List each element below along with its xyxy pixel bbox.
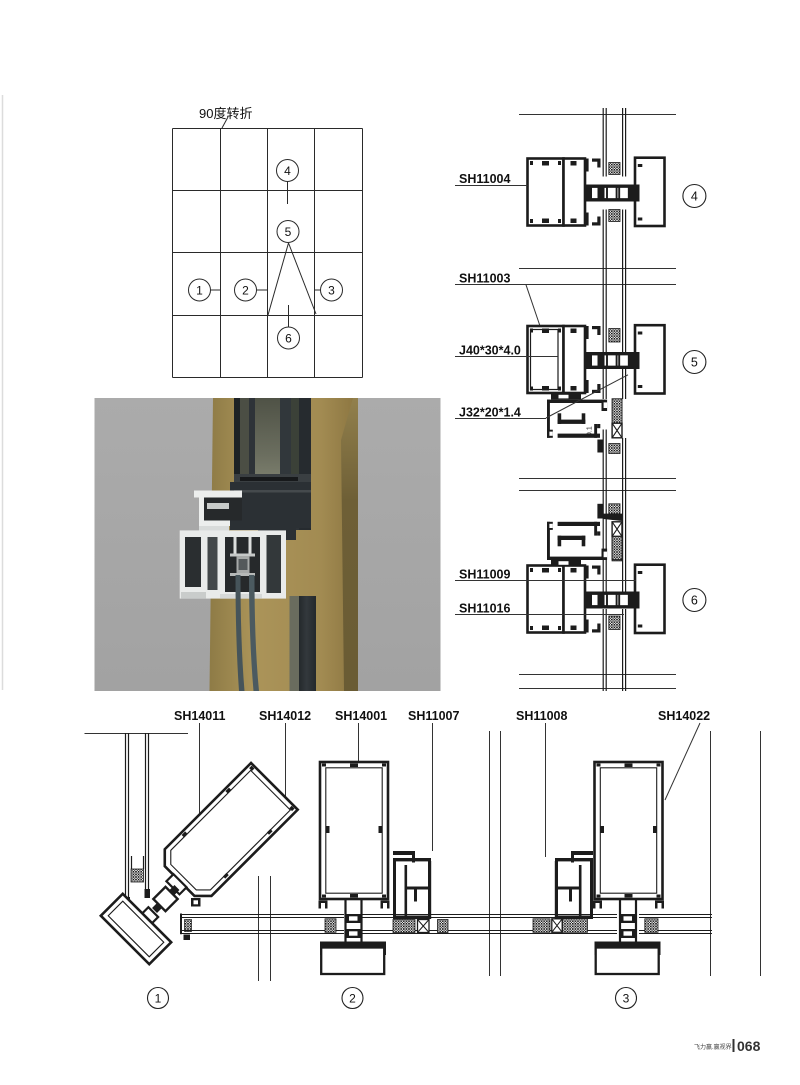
svg-text:J32*20*1.4: J32*20*1.4 xyxy=(459,406,521,420)
svg-text:SH11009: SH11009 xyxy=(459,568,510,582)
svg-text:SH11003: SH11003 xyxy=(459,272,510,286)
svg-text:5: 5 xyxy=(285,225,292,239)
svg-text:4: 4 xyxy=(284,164,291,178)
svg-text:SH11007: SH11007 xyxy=(408,709,459,723)
svg-text:6: 6 xyxy=(285,332,292,346)
svg-text:2: 2 xyxy=(349,991,356,1005)
svg-text:J40*30*4.0: J40*30*4.0 xyxy=(459,344,521,358)
svg-text:SH14012: SH14012 xyxy=(259,709,311,723)
svg-text:1: 1 xyxy=(155,991,162,1005)
svg-text:5: 5 xyxy=(691,356,698,370)
svg-text:飞力赢.赢视界: 飞力赢.赢视界 xyxy=(694,1043,732,1051)
svg-text:SH11008: SH11008 xyxy=(516,709,567,723)
svg-text:SH14022: SH14022 xyxy=(658,709,710,723)
svg-text:90度转折: 90度转折 xyxy=(199,106,252,121)
svg-text:068: 068 xyxy=(737,1038,761,1054)
svg-text:SH11016: SH11016 xyxy=(459,602,510,616)
svg-text:9.1: 9.1 xyxy=(587,426,594,436)
svg-text:1: 1 xyxy=(196,284,203,298)
svg-text:2: 2 xyxy=(242,284,249,298)
svg-text:6: 6 xyxy=(691,594,698,608)
svg-text:3: 3 xyxy=(623,991,630,1005)
svg-text:SH14001: SH14001 xyxy=(335,709,387,723)
svg-text:SH14011: SH14011 xyxy=(174,709,225,723)
svg-text:3: 3 xyxy=(328,284,335,298)
svg-text:SH11004: SH11004 xyxy=(459,172,510,186)
svg-text:4: 4 xyxy=(691,190,698,204)
